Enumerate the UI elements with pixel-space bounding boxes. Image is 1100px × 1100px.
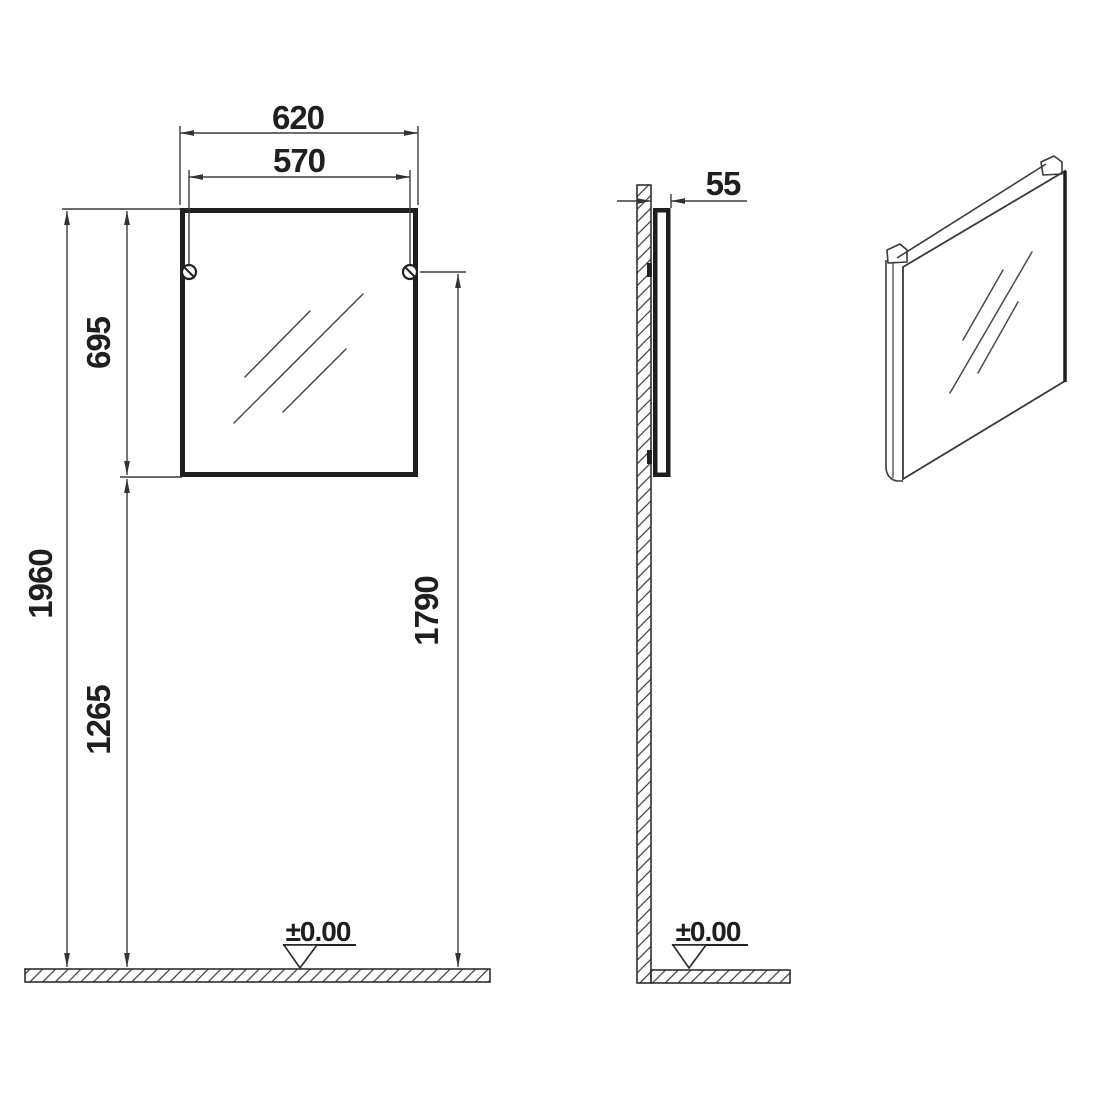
- dim-mirror-height: 695: [80, 211, 127, 475]
- mirror-side-profile: [655, 210, 668, 475]
- dim-695-label: 695: [80, 316, 117, 369]
- dim-total-height: 1960: [22, 211, 67, 967]
- floor-front: [25, 969, 490, 982]
- datum-symbol-side: ±0.00: [672, 916, 748, 968]
- datum-triangle-icon: [673, 945, 706, 968]
- technical-drawing-canvas: 620 570 1960 695 1265 1790: [0, 0, 1100, 1100]
- perspective-view: [886, 156, 1065, 481]
- datum-triangle-icon: [284, 945, 317, 968]
- bracket-bottom: [647, 450, 652, 464]
- floor-side-hatch: [651, 970, 790, 983]
- datum-label-side: ±0.00: [676, 916, 741, 947]
- mirror-face-perspective: [903, 171, 1065, 479]
- mirror-front-outline: [183, 211, 416, 475]
- side-view: 55 ±0.00: [617, 165, 790, 983]
- dim-1790-label: 1790: [408, 576, 445, 645]
- dim-floor-to-mirror-bottom: 1265: [80, 479, 127, 967]
- dim-1960-label: 1960: [22, 549, 59, 618]
- dim-620-label: 620: [272, 99, 324, 136]
- front-view: 620 570 1960 695 1265 1790: [22, 99, 490, 982]
- wall-hatch: [637, 185, 651, 983]
- floor-hatch: [25, 969, 490, 982]
- dim-mounting-width: 570: [189, 142, 410, 179]
- dim-55-label: 55: [706, 165, 741, 202]
- bracket-top: [647, 263, 652, 277]
- dim-1265-label: 1265: [80, 685, 117, 755]
- left-edge-band: [886, 260, 903, 481]
- datum-symbol-front: ±0.00: [283, 916, 356, 968]
- datum-label-front: ±0.00: [286, 916, 351, 947]
- dim-570-label: 570: [273, 142, 325, 179]
- mirror-installation-drawing: 620 570 1960 695 1265 1790: [0, 0, 1100, 1100]
